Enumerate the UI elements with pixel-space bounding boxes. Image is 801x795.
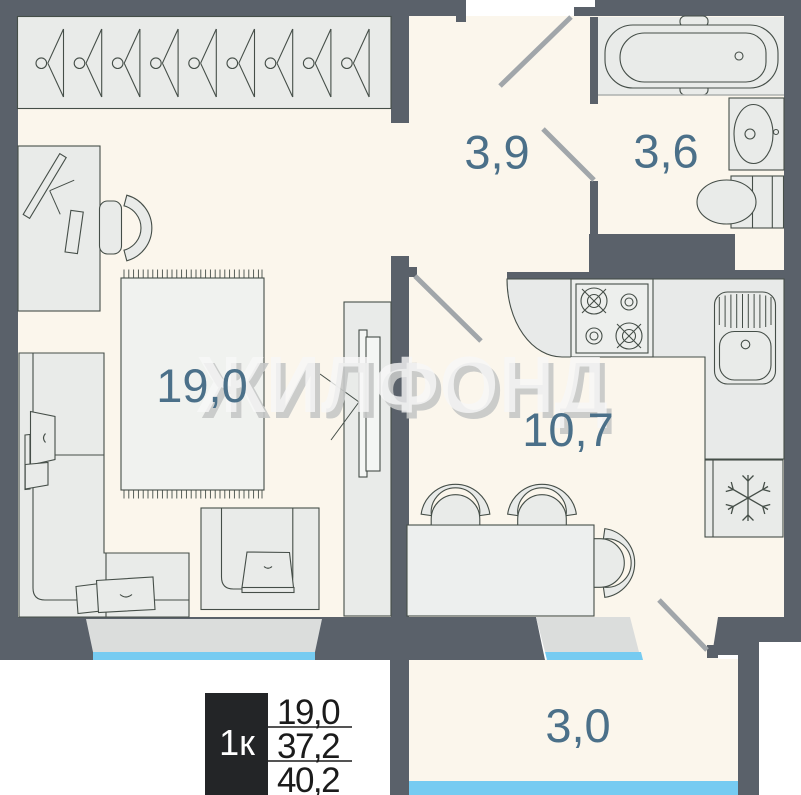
svg-text:19,0: 19,0 xyxy=(156,359,247,412)
svg-text:40,2: 40,2 xyxy=(277,761,339,795)
svg-text:3,9: 3,9 xyxy=(464,126,529,179)
svg-text:1к: 1к xyxy=(219,722,255,763)
svg-text:3,0: 3,0 xyxy=(545,699,610,752)
svg-text:10,7: 10,7 xyxy=(522,403,613,456)
svg-text:3,6: 3,6 xyxy=(633,125,698,178)
